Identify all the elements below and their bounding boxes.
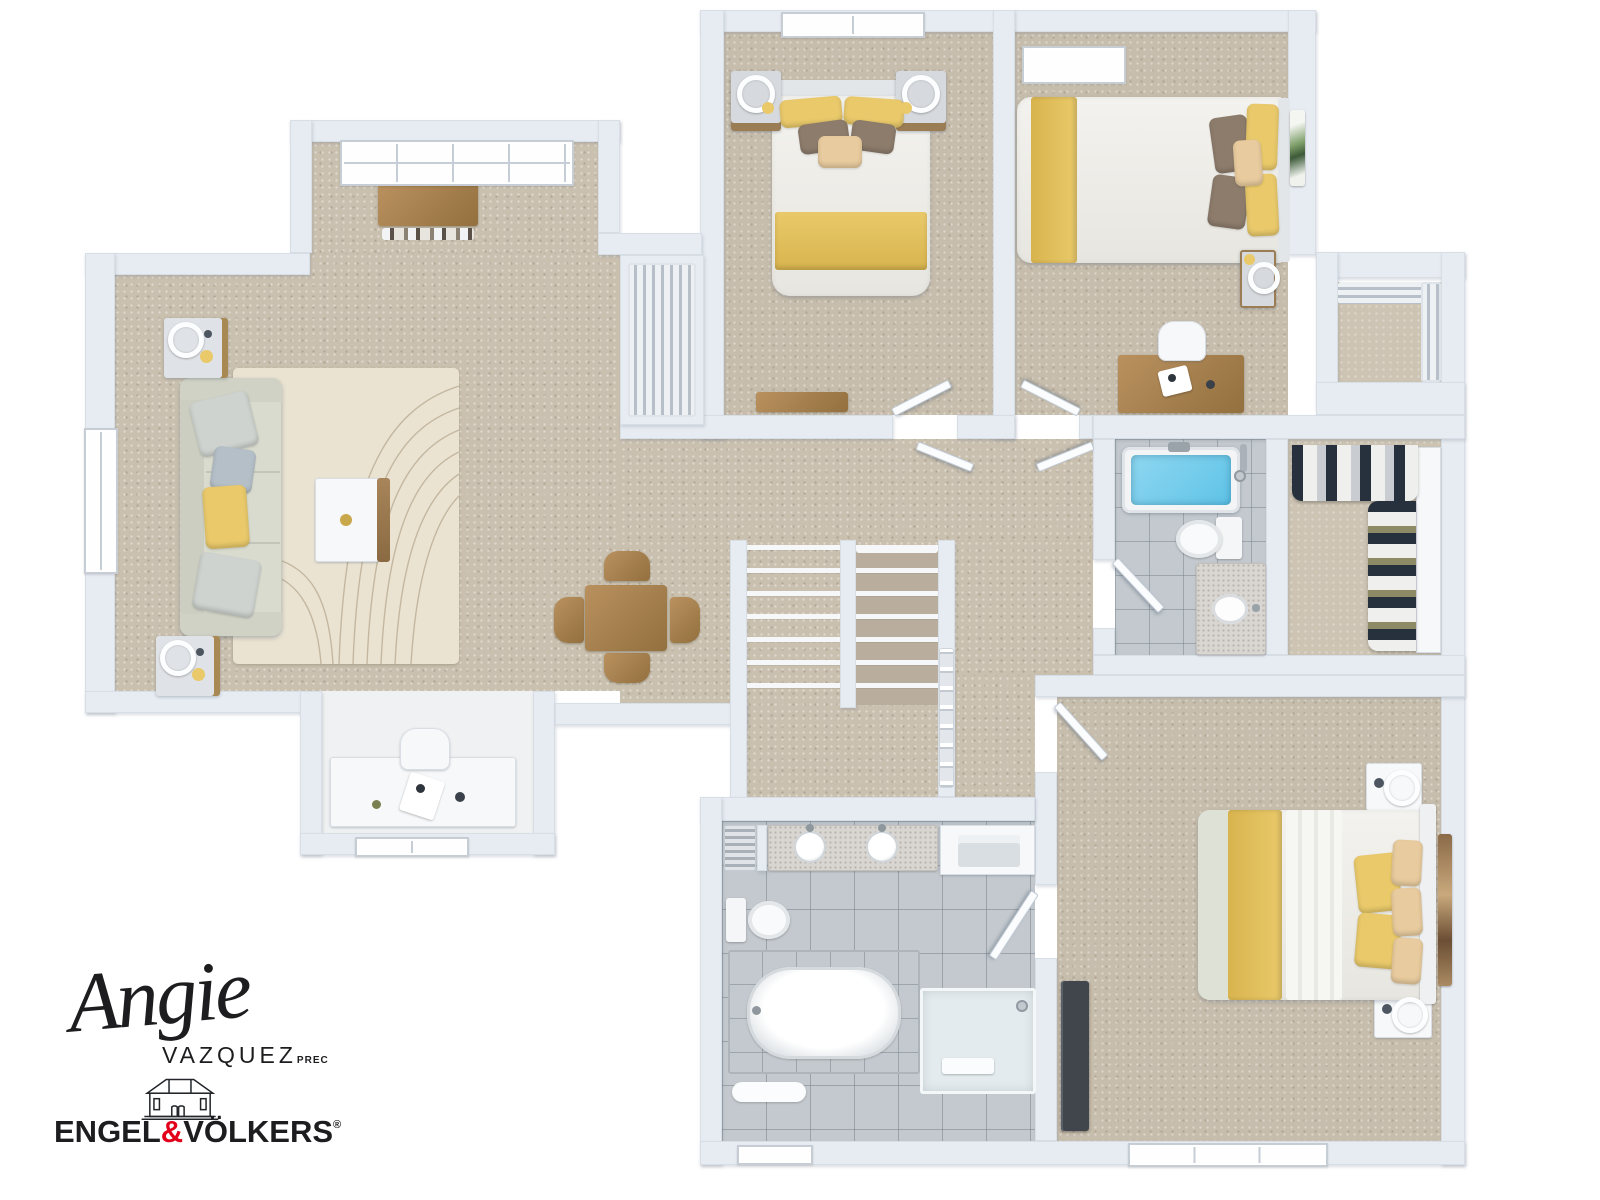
toilet-bowl [1176,520,1222,558]
wall [290,120,620,142]
sink-faucet [1252,604,1260,612]
agent-signature: Angie [64,940,253,1052]
bed-sheet-folds [1286,810,1342,1000]
decor-dish [900,102,912,114]
wall [533,691,555,855]
ring-lamp [1384,770,1420,806]
wall [1093,655,1465,675]
hall-floor-right [938,540,1093,675]
bedroom1-window [781,12,925,38]
decor-item [1374,778,1384,788]
bath-mat [732,1082,806,1102]
wall [700,1141,1465,1165]
shower-riser [1240,444,1247,472]
ring-lamp [168,322,204,358]
desk-item [416,784,425,793]
louvered-closet-doors [628,263,696,417]
window [84,428,118,574]
bed-duvet-edge [1198,810,1228,1000]
dining-chair [670,597,700,643]
wall [700,797,722,1165]
dining-chair [604,551,650,581]
tub-faucet [752,1006,761,1015]
wall [1035,772,1057,885]
staircase-open-flight [747,545,840,705]
decor-dish [192,668,205,681]
desk-item [1168,374,1176,382]
soaker-tub [747,967,901,1059]
linen-shelves [939,648,954,788]
decor-item [196,648,204,656]
agent-last-name-text: VAZQUEZ [162,1042,297,1068]
coffee-table-decor [340,514,352,526]
skylight [1022,46,1126,84]
bedroom-bench [756,392,848,412]
bed-pillow-tan [818,136,862,168]
bed-pillow-tan [1391,839,1423,887]
wall [1093,415,1465,439]
stair-landing-edge [856,545,938,553]
wall [993,10,1015,439]
wall [1093,439,1115,560]
entry-window [340,140,574,186]
desk-item [455,792,465,802]
bed-pillow-tan [1391,887,1423,937]
bed-throw-blanket [1031,97,1077,263]
wall [957,415,1015,439]
tub-faucet [1168,442,1190,452]
wall [300,691,322,855]
brokerage-ampersand: & [161,1114,183,1149]
nook-window [355,837,469,857]
wall-art [1438,834,1452,986]
wall [85,253,310,275]
sink-faucet [878,824,886,832]
wall [598,120,620,233]
ensuite-window [737,1145,813,1165]
dark-dresser [1061,981,1089,1131]
stair-center-wall [840,540,856,708]
wall [700,797,1035,821]
towel-radiator [724,825,756,871]
toilet-tank [726,898,746,942]
wall [555,703,747,725]
wood-sideboard [378,184,478,226]
agent-last-name: VAZQUEZPREC [162,1042,329,1069]
floor-plan-canvas: Angie VAZQUEZPREC ENGEL&VÖLKERS® [0,0,1600,1200]
vanity-partition [757,825,767,871]
staircase-enclosed-treads [856,545,938,705]
shelf-niche-interior [958,835,1020,867]
bed-pillow-tan [1232,139,1263,187]
throw-pillow [191,551,262,619]
dining-chair [604,653,650,683]
bed-throw-blanket [1228,810,1282,1000]
desk-chair [1158,321,1206,361]
desk-item [372,800,381,809]
brokerage-right: VÖLKERS [183,1114,333,1149]
wall [1266,439,1288,655]
master-window [1128,1143,1328,1167]
louvered-closet-doors [1421,282,1441,382]
sofa-armrest [180,612,282,636]
sink-faucet [806,824,814,832]
agent-designation: PREC [297,1055,329,1066]
ring-lamp [1248,262,1280,294]
registered-mark: ® [333,1119,341,1131]
decor-dish [200,350,213,363]
desk-item [1206,380,1215,389]
coffee-table-shelf [377,478,390,562]
wall [598,233,702,255]
brokerage-wordmark: ENGEL&VÖLKERS® [54,1114,341,1150]
bed-throw-blanket [775,212,927,270]
ring-lamp [160,640,196,676]
wall [1316,382,1465,415]
dining-chair [554,597,584,643]
wall [1093,628,1115,655]
hanging-clothes-rack [1368,501,1416,651]
vanity-sink [1212,594,1248,624]
wall [1079,415,1093,439]
corridor-floor [955,675,1035,797]
bed-headboard [1420,804,1436,1004]
brokerage-left: ENGEL [54,1114,161,1149]
wall-art [1290,110,1305,186]
bathtub-water [1131,455,1231,505]
shower-head [1016,1000,1028,1012]
decor-item [1382,1004,1392,1014]
books [382,228,474,240]
wall [1035,675,1465,697]
shower-tray [942,1058,994,1074]
bed-pillow-tan [1390,937,1423,985]
vanity-sink [794,831,826,863]
wall [1035,958,1057,1141]
decor-dish [762,102,774,114]
decor-dish [1244,254,1255,265]
desk-chair [400,728,450,770]
vanity-sink [866,831,898,863]
bed-headboard [1278,98,1290,262]
dining-table [585,585,667,651]
ring-lamp [1392,997,1428,1033]
toilet-bowl [748,901,790,939]
stair-newel-wall [730,540,747,805]
decor-item [204,330,212,338]
hall-floor-upper [620,439,1093,540]
brand-block: Angie VAZQUEZPREC ENGEL&VÖLKERS® [52,962,372,1172]
shower-head [1234,470,1246,482]
wardrobe [1416,447,1441,653]
wall [290,120,312,253]
hanging-clothes-rack [1292,445,1418,501]
throw-pillow [202,485,250,550]
